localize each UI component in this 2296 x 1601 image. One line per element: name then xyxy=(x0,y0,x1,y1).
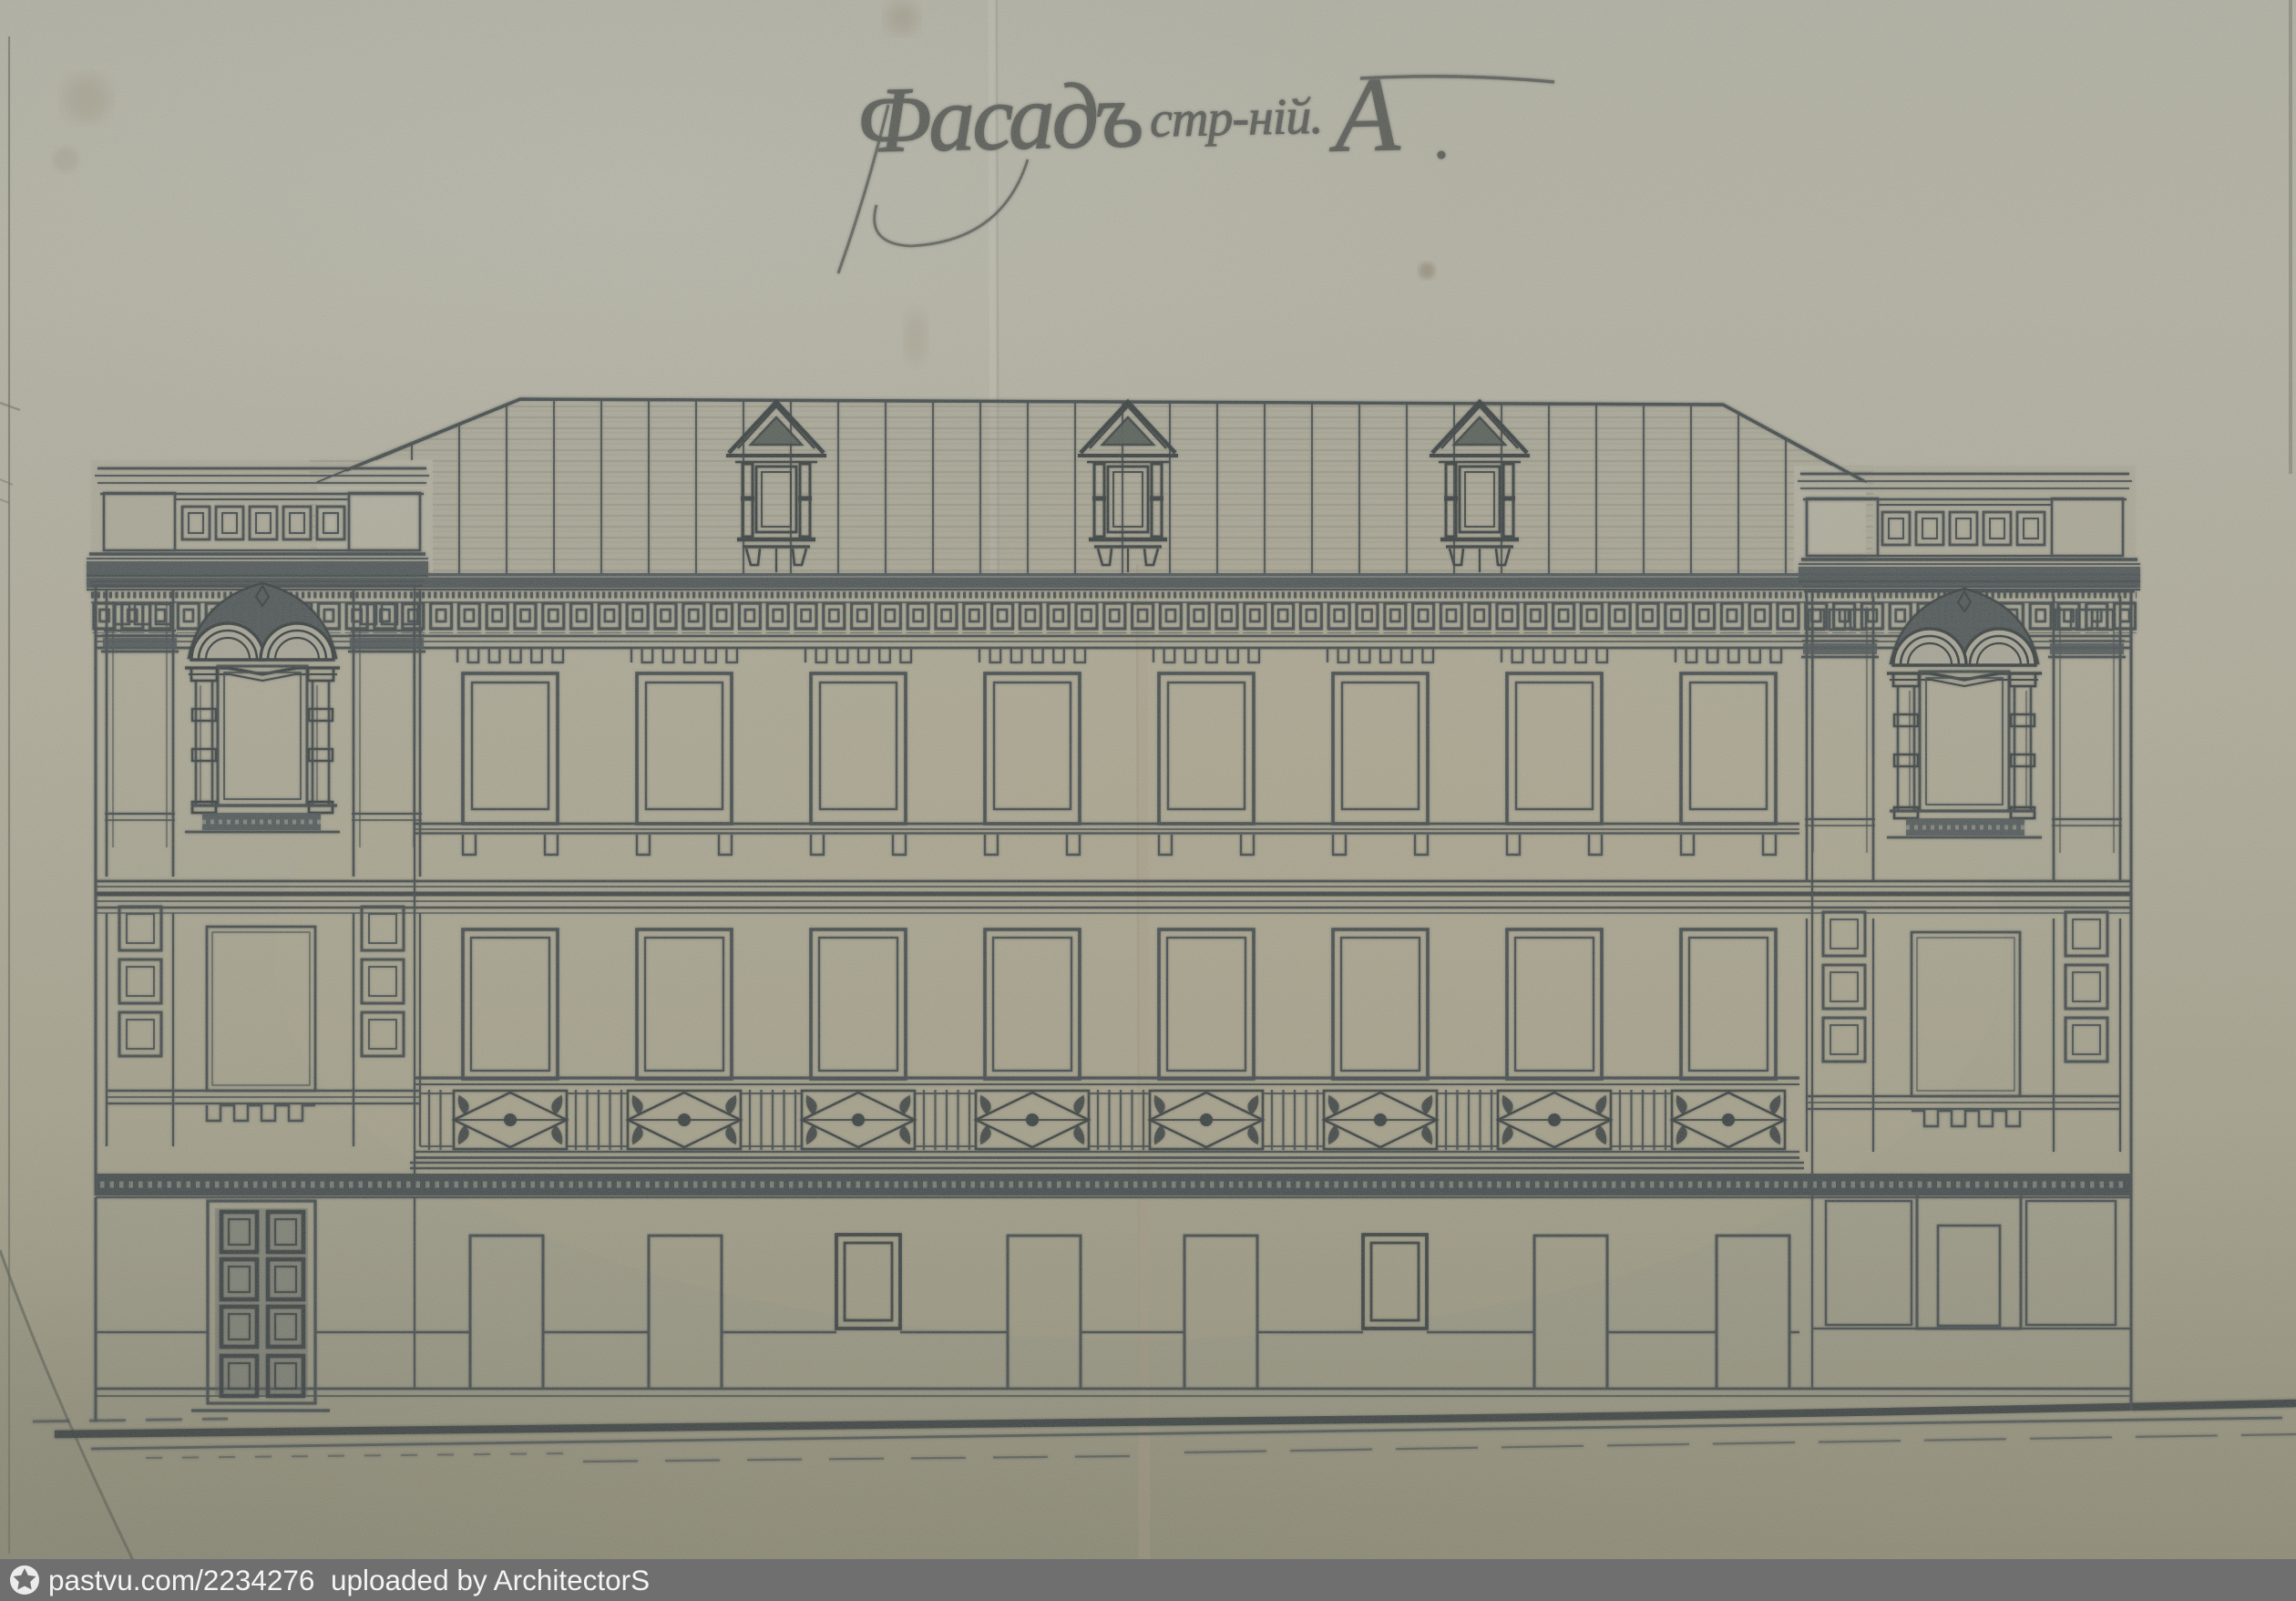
svg-text:pastvu.com/2234276 uploaded b: pastvu.com/2234276 uploaded by Architect… xyxy=(48,1564,650,1596)
